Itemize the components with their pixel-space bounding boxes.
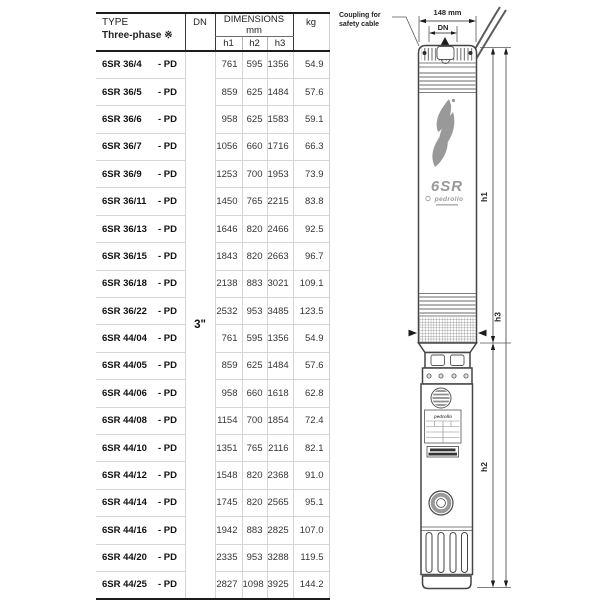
kg-value-cell: 57.6: [293, 352, 329, 379]
h3-value-cell: 1854: [267, 407, 293, 434]
h3-value-cell: 1953: [267, 161, 293, 188]
pump-type-cell: 6SR 36/5- PD: [96, 78, 185, 105]
h2-value-cell: 595: [242, 51, 267, 78]
h1-value-cell: 761: [215, 51, 242, 78]
h3-value-cell: 3925: [267, 571, 293, 598]
pump-taper: [419, 343, 477, 353]
power-cable: [476, 10, 507, 60]
cap-bolt: [423, 51, 427, 55]
kg-value-cell: 95.1: [293, 489, 329, 516]
h3-value-cell: 3021: [267, 270, 293, 297]
h1-value-cell: 1646: [215, 215, 242, 242]
h1-value-cell: 1843: [215, 243, 242, 270]
kg-value-cell: 91.0: [293, 462, 329, 489]
coupling-note-leader-line: [392, 17, 419, 46]
intake-arrow-icon: [478, 330, 487, 337]
coupling-note-line2: safety cable: [339, 21, 379, 28]
dimensions-column-header: DIMENSIONS mm: [215, 13, 293, 37]
kg-value-cell: 107.0: [293, 517, 329, 544]
cable-coupling-tab: [437, 47, 454, 60]
kg-value-cell: 82.1: [293, 434, 329, 461]
kg-value-cell: 66.3: [293, 133, 329, 160]
h1-value-cell: 761: [215, 325, 242, 352]
warning-label: [427, 447, 459, 458]
kg-value-cell: 96.7: [293, 243, 329, 270]
table-header: TYPE Three-phase ※ DN DIMENSIONS mm kg h…: [96, 13, 329, 51]
h3-dimension-label: h3: [493, 312, 503, 322]
plate-brand-text: pedrollo: [433, 414, 452, 419]
pump-type-cell: 6SR 36/11- PD: [96, 188, 185, 215]
h3-value-cell: 1484: [267, 78, 293, 105]
h2-value-cell: 700: [242, 407, 267, 434]
h3-value-cell: 3288: [267, 544, 293, 571]
pump-ribbed-band: [420, 70, 476, 92]
h2-value-cell: 765: [242, 434, 267, 461]
h3-value-cell: 2215: [267, 188, 293, 215]
motor-nameplate: pedrollo: [425, 410, 462, 443]
h2-value-cell: 625: [242, 78, 267, 105]
kg-value-cell: 119.5: [293, 544, 329, 571]
flange-bolt: [452, 374, 456, 378]
width-dimension-label: 148 mm: [434, 8, 462, 17]
kg-value-cell: 109.1: [293, 270, 329, 297]
h2-value-cell: 625: [242, 352, 267, 379]
h2-value-cell: 765: [242, 188, 267, 215]
suction-strainer: [420, 318, 476, 343]
h2-value-cell: 953: [242, 298, 267, 325]
table-body: 6SR 36/4- PD 3"761 595 1356 54.9 6SR 36/…: [96, 51, 329, 599]
kg-value-cell: 54.9: [293, 51, 329, 78]
pump-type-cell: 6SR 36/13- PD: [96, 215, 185, 242]
pump-type-cell: 6SR 44/14- PD: [96, 489, 185, 516]
h1-value-cell: 2827: [215, 571, 242, 598]
cap-bolt: [469, 51, 473, 55]
h1-value-cell: 958: [215, 106, 242, 133]
flange-bolt: [427, 374, 431, 378]
h1-value-cell: 1056: [215, 133, 242, 160]
h3-value-cell: 1618: [267, 380, 293, 407]
h3-value-cell: 1583: [267, 106, 293, 133]
h2-value-cell: 660: [242, 133, 267, 160]
coupling-note-line1: Coupling for: [339, 12, 381, 19]
pump-type-cell: 6SR 44/05- PD: [96, 352, 185, 379]
h3-value-cell: 3485: [267, 298, 293, 325]
pump-type-cell: 6SR 36/18- PD: [96, 270, 185, 297]
h1-value-cell: 1154: [215, 407, 242, 434]
h2-value-cell: 883: [242, 517, 267, 544]
pump-type-cell: 6SR 36/6- PD: [96, 106, 185, 133]
h1-value-cell: 2532: [215, 298, 242, 325]
three-phase-label: Three-phase ※: [102, 29, 185, 42]
brand-text: pedrollo: [434, 196, 464, 203]
pump-ribbed-band: [420, 294, 476, 315]
h2-value-cell: 700: [242, 161, 267, 188]
h1-value-cell: 1942: [215, 517, 242, 544]
h1-value-cell: 1548: [215, 462, 242, 489]
flange-bolt: [464, 374, 468, 378]
pump-type-cell: 6SR 44/16- PD: [96, 517, 185, 544]
dn-column-header: DN: [185, 13, 215, 51]
h1-value-cell: 958: [215, 380, 242, 407]
kg-value-cell: 92.5: [293, 215, 329, 242]
kg-value-cell: 123.5: [293, 298, 329, 325]
h1-value-cell: 2335: [215, 544, 242, 571]
h3-value-cell: 1356: [267, 51, 293, 78]
h1-value-cell: 2138: [215, 270, 242, 297]
h3-value-cell: 1716: [267, 133, 293, 160]
pump-type-cell: 6SR 44/10- PD: [96, 434, 185, 461]
h3-value-cell: 2663: [267, 243, 293, 270]
h3-value-cell: 2116: [267, 434, 293, 461]
pump-type-cell: 6SR 44/25- PD: [96, 571, 185, 598]
kg-value-cell: 57.6: [293, 78, 329, 105]
pump-type-cell: 6SR 36/15- PD: [96, 243, 185, 270]
pump-type-cell: 6SR 44/08- PD: [96, 407, 185, 434]
dn-dimension-label: DN: [438, 23, 449, 32]
h1-value-cell: 859: [215, 78, 242, 105]
brand-subtext-bar: [436, 204, 458, 206]
pump-type-cell: 6SR 44/12- PD: [96, 462, 185, 489]
h2-dimension-label: h2: [479, 462, 489, 472]
pump-technical-drawing: Coupling for safety cable 148 mm DN: [330, 0, 600, 600]
pump-type-cell: 6SR 44/20- PD: [96, 544, 185, 571]
intake-arrow-icon: [409, 330, 418, 337]
filling-plug: [429, 491, 453, 515]
h1-value-cell: 1351: [215, 434, 242, 461]
h2-value-cell: 820: [242, 215, 267, 242]
h3-value-cell: 2565: [267, 489, 293, 516]
h2-value-cell: 595: [242, 325, 267, 352]
discharge-arrow-icon: [441, 37, 450, 46]
h2-value-cell: 820: [242, 243, 267, 270]
h2-value-cell: 820: [242, 489, 267, 516]
h3-value-cell: 1484: [267, 352, 293, 379]
h2-value-cell: 660: [242, 380, 267, 407]
pump-model-logo: 6SR: [431, 178, 463, 195]
kg-value-cell: 54.9: [293, 325, 329, 352]
h2-value-cell: 883: [242, 270, 267, 297]
h2-value-cell: 1098: [242, 571, 267, 598]
type-column-header: TYPE Three-phase ※: [96, 13, 185, 51]
h2-column-header: h2: [242, 37, 267, 52]
pump-type-cell: 6SR 36/7- PD: [96, 133, 185, 160]
pump-type-cell: 6SR 36/4- PD: [96, 51, 185, 78]
pump-type-cell: 6SR 36/9- PD: [96, 161, 185, 188]
kg-value-cell: 73.9: [293, 161, 329, 188]
pump-type-cell: 6SR 44/06- PD: [96, 380, 185, 407]
h1-value-cell: 1450: [215, 188, 242, 215]
h2-value-cell: 625: [242, 106, 267, 133]
type-label: TYPE: [102, 16, 185, 29]
h3-column-header: h3: [267, 37, 293, 52]
table-row: 6SR 36/4- PD 3"761 595 1356 54.9: [96, 51, 329, 78]
pump-type-cell: 6SR 36/22- PD: [96, 298, 185, 325]
flange-bolt: [439, 374, 443, 378]
dimensions-table: TYPE Three-phase ※ DN DIMENSIONS mm kg h…: [96, 12, 330, 600]
datasheet-page: TYPE Three-phase ※ DN DIMENSIONS mm kg h…: [0, 0, 600, 600]
h1-dimension-label: h1: [479, 192, 489, 202]
kg-value-cell: 62.8: [293, 380, 329, 407]
h2-value-cell: 953: [242, 544, 267, 571]
motor-bottom-cap: [423, 576, 472, 589]
kg-value-cell: 144.2: [293, 571, 329, 598]
h3-value-cell: 2368: [267, 462, 293, 489]
h1-value-cell: 859: [215, 352, 242, 379]
kg-value-cell: 59.1: [293, 106, 329, 133]
h3-value-cell: 1356: [267, 325, 293, 352]
pump-type-cell: 6SR 44/04- PD: [96, 325, 185, 352]
h1-column-header: h1: [215, 37, 242, 52]
h1-value-cell: 1745: [215, 489, 242, 516]
kg-column-header: kg: [293, 13, 329, 51]
kg-value-cell: 83.8: [293, 188, 329, 215]
kg-value-cell: 72.4: [293, 407, 329, 434]
h1-value-cell: 1253: [215, 161, 242, 188]
h3-value-cell: 2466: [267, 215, 293, 242]
h3-value-cell: 2825: [267, 517, 293, 544]
h2-value-cell: 820: [242, 462, 267, 489]
dn-value-cell: 3": [185, 51, 215, 599]
